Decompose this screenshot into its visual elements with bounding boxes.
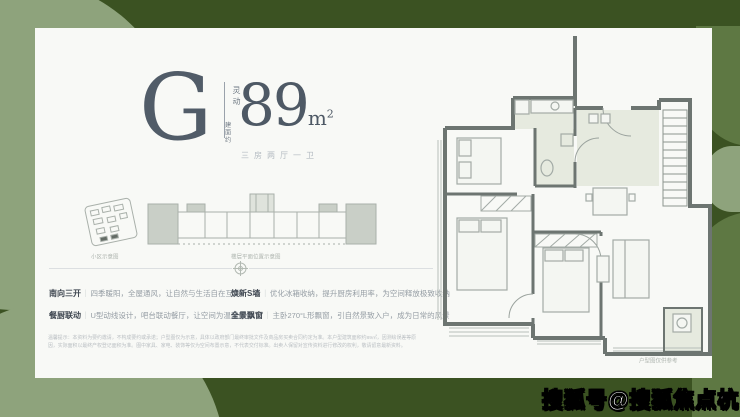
plan-letter: G — [139, 62, 213, 154]
feature-kitchen-dining: 餐厨联动｜U型动线设计，吧台联动餐厅，让空间为温馨服务 — [49, 310, 253, 321]
floorplate-diagram — [143, 186, 381, 254]
feature-s-wall: 焕新S墙｜优化冰箱收纳，提升厨房利用率，为空间释放极致收纳 — [231, 288, 450, 299]
floorplate-caption: 楼层平面位置示意图 — [231, 252, 281, 260]
floor-plan-drawing — [433, 36, 713, 372]
floorplan-card: G 灵动 建面约 89m2 三房两厅一卫 小区示意图 — [35, 28, 712, 378]
area-unit: m2 — [308, 106, 334, 130]
area-prefix: 建面约 — [225, 122, 235, 144]
watermark-text: 搜狐号@搜狐焦点杭州站 — [542, 384, 740, 417]
feature-south-facing: 南向三开｜四季暖阳，全屋通风，让自然与生活自在互动 — [49, 288, 241, 299]
page-background: G 灵动 建面约 89m2 三房两厅一卫 小区示意图 — [0, 0, 740, 417]
layout-text: 三房两厅一卫 — [241, 150, 319, 161]
plan-caption: 户型图仅供参考 — [639, 356, 678, 364]
site-plan-diagram — [81, 194, 141, 250]
area-figure: 89m2 — [238, 76, 334, 134]
legal-disclaimer: 温馨提示：本资料为要约邀请，不构成要约或承诺；户型图仅为示意，具体以政府部门最终… — [48, 334, 420, 350]
area-value: 89 — [238, 71, 308, 139]
compass-icon — [232, 260, 249, 277]
feature-bay-window: 全景飘窗｜主卧270°L形飘窗，引自然景致入户，成为日常的风景 — [231, 310, 450, 321]
site-plan-caption: 小区示意图 — [91, 252, 119, 260]
